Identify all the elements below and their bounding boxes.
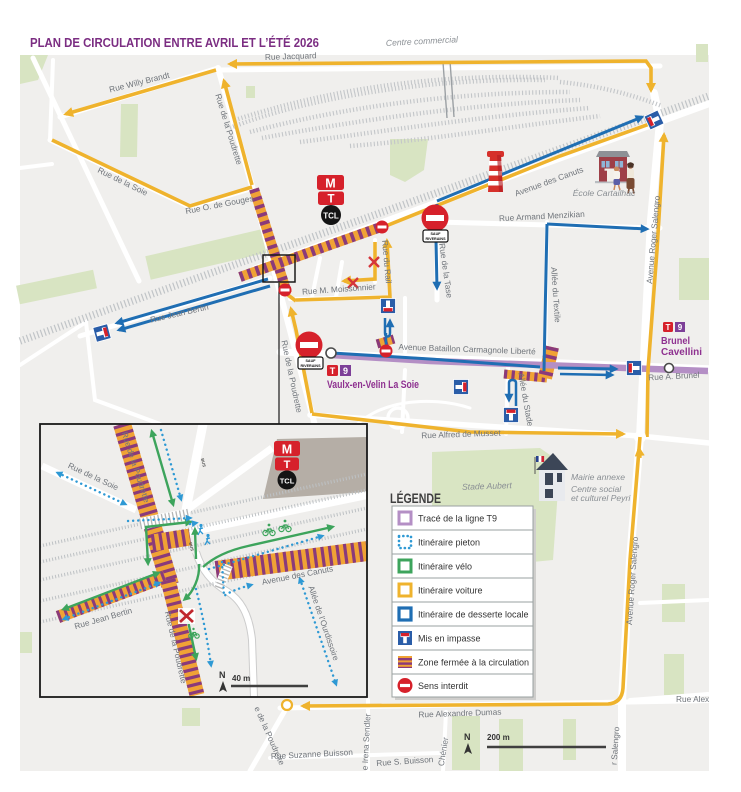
svg-text:Vaulx-en-Velin La Soie: Vaulx-en-Velin La Soie xyxy=(327,379,419,391)
svg-text:PLAN DE CIRCULATION ENTRE AVR: PLAN DE CIRCULATION ENTRE AVRIL ET L’ÉTÉ… xyxy=(30,35,319,50)
svg-text:École Cartailhac: École Cartailhac xyxy=(573,188,636,198)
svg-text:Mis en impasse: Mis en impasse xyxy=(418,634,481,644)
svg-text:Zone fermée à la circulation: Zone fermée à la circulation xyxy=(418,658,529,668)
svg-text:M: M xyxy=(282,443,292,457)
svg-text:Cavellini: Cavellini xyxy=(661,346,702,358)
svg-text:T: T xyxy=(330,366,336,376)
svg-text:Itinéraire pieton: Itinéraire pieton xyxy=(418,538,480,548)
svg-text:RIVERAINS: RIVERAINS xyxy=(300,364,321,368)
svg-text:Itinéraire vélo: Itinéraire vélo xyxy=(418,562,472,572)
svg-text:9: 9 xyxy=(678,323,683,332)
svg-text:40 m: 40 m xyxy=(232,674,250,683)
svg-text:et culturel Peyri: et culturel Peyri xyxy=(571,493,631,503)
svg-text:200 m: 200 m xyxy=(487,733,510,742)
svg-text:SAUF: SAUF xyxy=(430,232,441,236)
svg-text:TCL: TCL xyxy=(323,212,339,221)
svg-text:Itinéraire voiture: Itinéraire voiture xyxy=(418,586,483,596)
svg-text:T: T xyxy=(666,323,671,332)
svg-text:TCL: TCL xyxy=(280,477,295,486)
svg-text:9: 9 xyxy=(343,366,348,376)
svg-text:Itinéraire de desserte locale: Itinéraire de desserte locale xyxy=(418,610,529,620)
svg-text:RIVERAINS: RIVERAINS xyxy=(425,237,446,241)
svg-text:Tracé de la ligne T9: Tracé de la ligne T9 xyxy=(418,514,497,524)
svg-text:N: N xyxy=(464,732,471,742)
svg-text:M: M xyxy=(325,177,335,191)
svg-text:T: T xyxy=(284,459,291,471)
svg-text:SAUF: SAUF xyxy=(305,359,316,363)
svg-text:Mairie annexe: Mairie annexe xyxy=(571,472,625,482)
svg-text:LÉGENDE: LÉGENDE xyxy=(390,491,441,506)
svg-text:Sens interdit: Sens interdit xyxy=(418,681,469,691)
svg-text:T: T xyxy=(327,194,334,206)
svg-text:Rue Alex: Rue Alex xyxy=(676,694,710,704)
svg-text:Rue Jacquard: Rue Jacquard xyxy=(265,50,317,62)
svg-text:N: N xyxy=(219,670,226,680)
svg-text:Stade Aubert: Stade Aubert xyxy=(462,480,513,492)
